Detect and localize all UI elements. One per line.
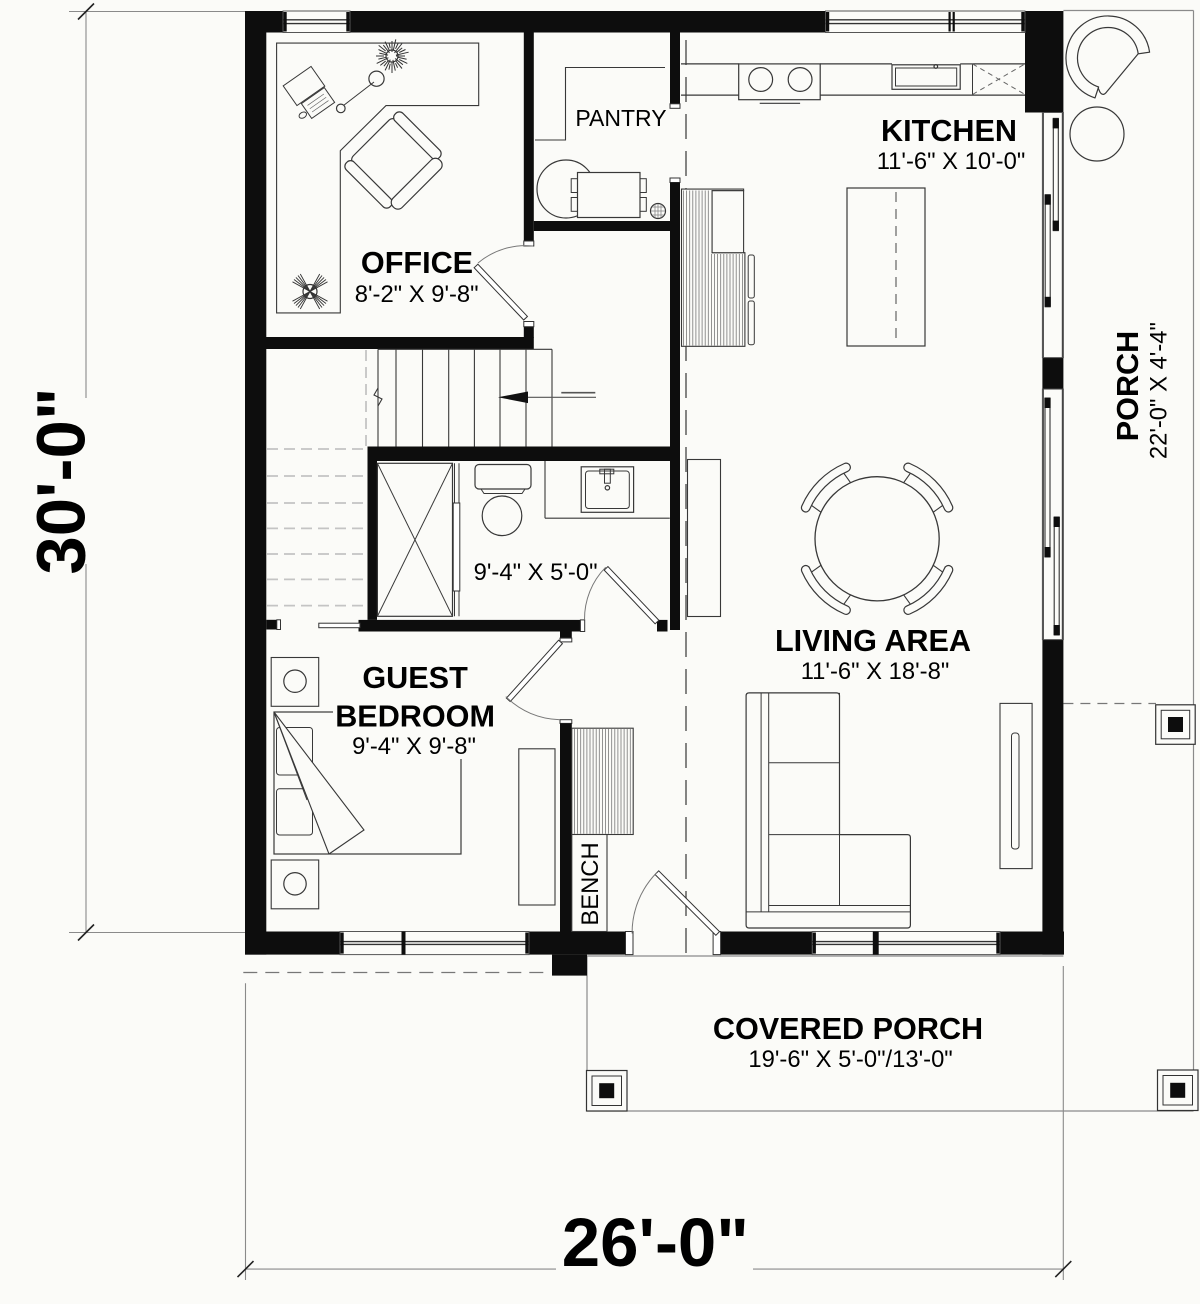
svg-text:PANTRY: PANTRY (575, 105, 666, 131)
svg-text:9'-4" X 5'-0": 9'-4" X 5'-0" (474, 559, 598, 586)
svg-text:26'-0": 26'-0" (562, 1204, 749, 1281)
svg-text:PORCH: PORCH (1111, 331, 1145, 441)
svg-text:LIVING AREA: LIVING AREA (775, 624, 971, 658)
svg-text:11'-6" X 10'-0": 11'-6" X 10'-0" (877, 148, 1026, 175)
svg-text:BEDROOM: BEDROOM (335, 699, 495, 733)
svg-text:BENCH: BENCH (577, 842, 604, 925)
svg-text:19'-6" X 5'-0"/13'-0": 19'-6" X 5'-0"/13'-0" (748, 1046, 952, 1073)
svg-text:11'-6" X 18'-8": 11'-6" X 18'-8" (801, 658, 950, 685)
svg-text:GUEST: GUEST (362, 661, 468, 695)
svg-text:22'-0" X 4'-4": 22'-0" X 4'-4" (1146, 322, 1173, 459)
svg-text:8'-2" X 9'-8": 8'-2" X 9'-8" (355, 281, 479, 308)
svg-text:COVERED PORCH: COVERED PORCH (713, 1012, 983, 1046)
svg-text:9'-4" X 9'-8": 9'-4" X 9'-8" (352, 733, 476, 760)
svg-text:30'-0": 30'-0" (23, 387, 100, 574)
svg-text:OFFICE: OFFICE (361, 246, 473, 280)
svg-text:KITCHEN: KITCHEN (881, 114, 1017, 148)
